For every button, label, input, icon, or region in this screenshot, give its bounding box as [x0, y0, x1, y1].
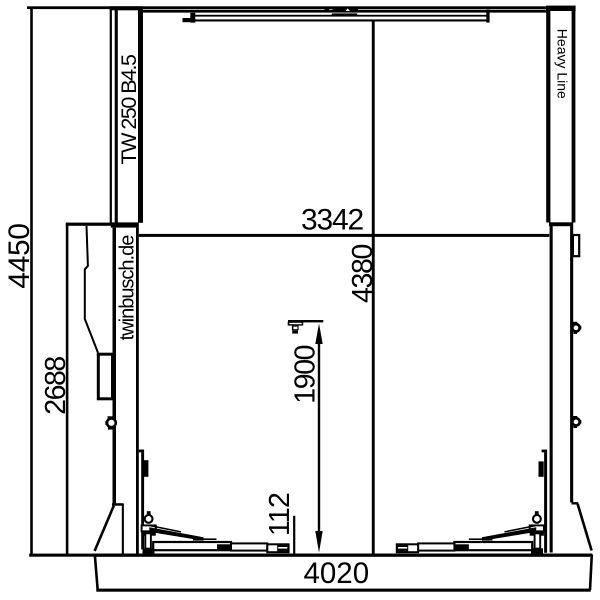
svg-text:Heavy Line: Heavy Line: [555, 29, 571, 99]
svg-text:4020: 4020: [303, 557, 369, 590]
svg-text:3342: 3342: [301, 204, 363, 237]
svg-text:4380: 4380: [347, 245, 379, 304]
svg-text:twinbusch.de: twinbusch.de: [117, 235, 139, 341]
svg-text:1900: 1900: [289, 345, 321, 403]
svg-text:4450: 4450: [3, 223, 36, 288]
svg-text:112: 112: [264, 493, 296, 536]
svg-text:TW 250 B4.5: TW 250 B4.5: [117, 54, 141, 165]
svg-text:2688: 2688: [40, 357, 72, 415]
